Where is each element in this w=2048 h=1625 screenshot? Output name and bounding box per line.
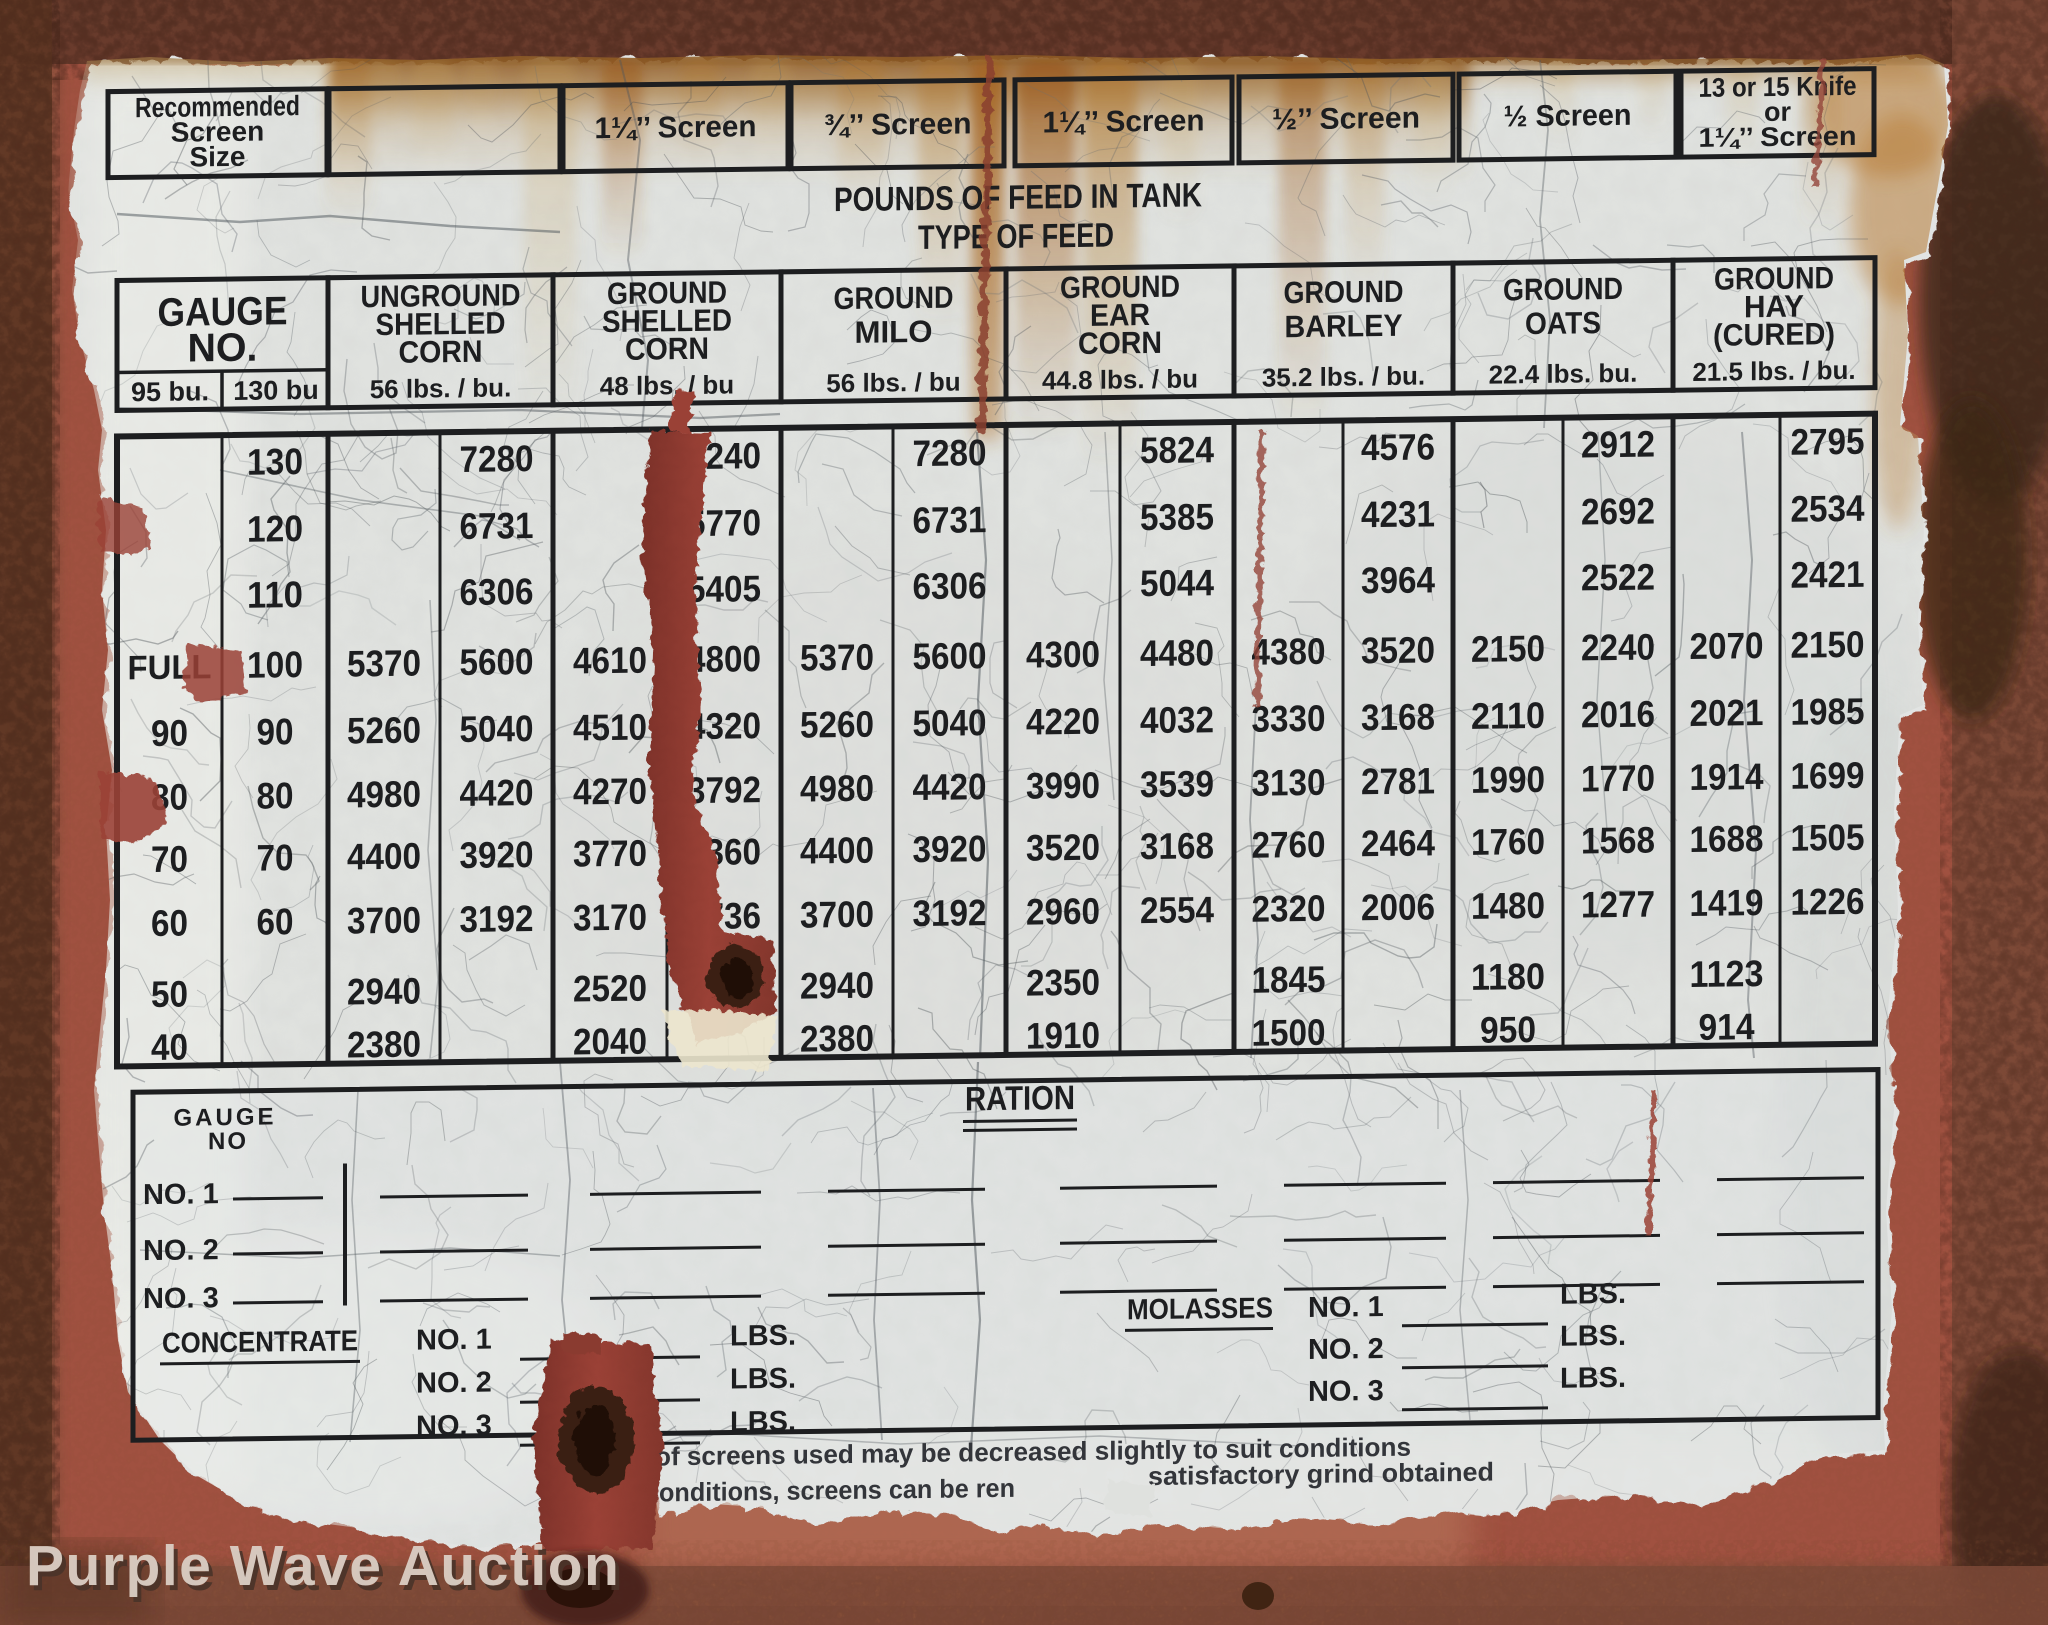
svg-text:3192: 3192 [912, 892, 986, 934]
svg-text:70: 70 [151, 839, 188, 880]
svg-text:(CURED): (CURED) [1713, 316, 1835, 353]
svg-text:4400: 4400 [800, 830, 874, 872]
svg-text:CORN: CORN [398, 334, 482, 370]
svg-text:1480: 1480 [1471, 885, 1545, 927]
svg-text:1226: 1226 [1791, 881, 1865, 923]
svg-text:¾’’ Screen: ¾’’ Screen [824, 107, 972, 142]
svg-text:22.4 lbs. bu.: 22.4 lbs. bu. [1489, 358, 1638, 390]
svg-text:OATS: OATS [1525, 305, 1601, 341]
svg-text:4032: 4032 [1140, 699, 1214, 741]
svg-text:2795: 2795 [1791, 421, 1865, 463]
svg-text:1688: 1688 [1690, 818, 1764, 860]
svg-text:2912: 2912 [1581, 423, 1655, 465]
svg-text:½ Screen: ½ Screen [1504, 99, 1632, 134]
svg-text:2534: 2534 [1791, 488, 1865, 530]
svg-text:7280: 7280 [460, 438, 534, 480]
svg-text:2940: 2940 [347, 971, 421, 1013]
svg-text:56 lbs. / bu: 56 lbs. / bu [826, 367, 960, 399]
svg-text:2380: 2380 [347, 1024, 421, 1066]
svg-text:2522: 2522 [1581, 556, 1655, 598]
svg-text:LBS.: LBS. [730, 1320, 796, 1353]
svg-text:6731: 6731 [460, 505, 534, 547]
svg-text:3990: 3990 [1026, 765, 1100, 807]
svg-text:1910: 1910 [1026, 1015, 1100, 1057]
svg-text:4420: 4420 [912, 766, 986, 808]
svg-text:4480: 4480 [1140, 632, 1214, 674]
svg-text:NO. 3: NO. 3 [143, 1282, 219, 1315]
svg-text:60: 60 [256, 901, 293, 942]
svg-text:80: 80 [256, 775, 293, 816]
svg-text:2150: 2150 [1471, 628, 1545, 670]
svg-text:LBS.: LBS. [1560, 1362, 1626, 1395]
svg-text:130 bu: 130 bu [233, 375, 319, 406]
svg-text:3770: 3770 [573, 833, 647, 875]
svg-text:GROUND: GROUND [1503, 271, 1623, 308]
svg-text:Size: Size [189, 141, 245, 173]
svg-text:MOLASSES: MOLASSES [1127, 1292, 1273, 1326]
svg-text:2040: 2040 [573, 1021, 647, 1063]
svg-text:5385: 5385 [1140, 496, 1214, 538]
svg-text:3520: 3520 [1361, 629, 1435, 671]
svg-text:21.5 lbs. / bu.: 21.5 lbs. / bu. [1692, 355, 1855, 387]
svg-text:44.8 lbs. / bu: 44.8 lbs. / bu [1042, 363, 1198, 395]
svg-text:3192: 3192 [460, 898, 534, 940]
svg-text:5370: 5370 [347, 643, 421, 685]
svg-text:TYPE OF FEED: TYPE OF FEED [918, 217, 1114, 258]
svg-text:3700: 3700 [347, 900, 421, 942]
svg-text:2110: 2110 [1471, 695, 1545, 737]
svg-text:4980: 4980 [347, 774, 421, 816]
svg-text:NO. 1: NO. 1 [143, 1178, 219, 1211]
svg-text:4220: 4220 [1026, 701, 1100, 743]
svg-text:5600: 5600 [460, 641, 534, 683]
svg-text:95 bu.: 95 bu. [131, 376, 209, 407]
svg-text:1505: 1505 [1791, 817, 1865, 859]
svg-text:NO. 3: NO. 3 [1308, 1375, 1384, 1408]
svg-text:½’’ Screen: ½’’ Screen [1272, 102, 1420, 137]
svg-text:3168: 3168 [1140, 825, 1214, 867]
svg-text:1985: 1985 [1791, 691, 1865, 733]
svg-text:MILO: MILO [855, 314, 933, 350]
svg-text:3792: 3792 [687, 769, 761, 811]
svg-text:90: 90 [256, 711, 293, 752]
svg-text:5040: 5040 [912, 702, 986, 744]
svg-text:4610: 4610 [573, 640, 647, 682]
svg-text:90: 90 [151, 713, 188, 754]
svg-text:2150: 2150 [1791, 624, 1865, 666]
svg-text:5040: 5040 [460, 708, 534, 750]
svg-text:1699: 1699 [1791, 755, 1865, 797]
svg-text:1123: 1123 [1690, 953, 1764, 995]
svg-text:3920: 3920 [912, 828, 986, 870]
svg-text:1¼’’ Screen: 1¼’’ Screen [595, 110, 757, 145]
svg-text:1990: 1990 [1471, 759, 1545, 801]
svg-text:100: 100 [247, 644, 303, 686]
svg-text:4576: 4576 [1361, 426, 1435, 468]
svg-text:1914: 1914 [1690, 756, 1764, 798]
svg-text:CONCENTRATE: CONCENTRATE [162, 1325, 358, 1360]
svg-text:2006: 2006 [1361, 886, 1435, 928]
svg-text:6731: 6731 [912, 499, 986, 541]
svg-text:4380: 4380 [1251, 631, 1325, 673]
svg-text:3170: 3170 [573, 897, 647, 939]
svg-text:56 lbs. / bu.: 56 lbs. / bu. [370, 372, 512, 404]
svg-text:4510: 4510 [573, 707, 647, 749]
svg-text:3130: 3130 [1251, 762, 1325, 804]
svg-text:4231: 4231 [1361, 493, 1435, 535]
svg-text:BARLEY: BARLEY [1285, 308, 1403, 345]
svg-text:5405: 5405 [687, 568, 761, 610]
svg-text:3539: 3539 [1140, 763, 1214, 805]
svg-text:3520: 3520 [1026, 827, 1100, 869]
svg-text:NO. 2: NO. 2 [1308, 1333, 1384, 1366]
svg-text:2781: 2781 [1361, 760, 1435, 802]
svg-text:NO. 1: NO. 1 [1308, 1291, 1384, 1324]
svg-text:3168: 3168 [1361, 696, 1435, 738]
svg-text:2464: 2464 [1361, 822, 1435, 864]
svg-text:4300: 4300 [1026, 634, 1100, 676]
svg-text:2350: 2350 [1026, 962, 1100, 1004]
svg-text:35.2 lbs. / bu.: 35.2 lbs. / bu. [1262, 360, 1425, 392]
svg-text:4270: 4270 [573, 771, 647, 813]
svg-text:5260: 5260 [347, 710, 421, 752]
svg-text:GROUND: GROUND [834, 280, 954, 317]
svg-text:2421: 2421 [1791, 554, 1865, 596]
svg-text:LBS.: LBS. [1560, 1320, 1626, 1353]
svg-text:60: 60 [151, 903, 188, 944]
svg-text:2940: 2940 [800, 965, 874, 1007]
svg-text:2016: 2016 [1581, 693, 1655, 735]
svg-text:1770: 1770 [1581, 757, 1655, 799]
svg-text:Purple Wave Auction: Purple Wave Auction [26, 1534, 620, 1598]
svg-text:2240: 2240 [1581, 626, 1655, 668]
svg-text:LBS.: LBS. [730, 1406, 796, 1439]
svg-text:7280: 7280 [912, 432, 986, 474]
svg-text:CORN: CORN [625, 331, 709, 367]
svg-text:1568: 1568 [1581, 819, 1655, 861]
svg-text:5600: 5600 [912, 635, 986, 677]
svg-text:NO. 1: NO. 1 [416, 1324, 492, 1357]
svg-text:4320: 4320 [687, 705, 761, 747]
svg-text:LBS.: LBS. [730, 1363, 796, 1396]
svg-text:2021: 2021 [1690, 692, 1764, 734]
svg-text:1180: 1180 [1471, 956, 1545, 998]
svg-text:CORN: CORN [1078, 325, 1162, 361]
svg-text:3964: 3964 [1361, 559, 1435, 601]
svg-text:50: 50 [151, 974, 188, 1015]
svg-text:3330: 3330 [1251, 698, 1325, 740]
svg-text:2554: 2554 [1140, 889, 1214, 931]
svg-text:1419: 1419 [1690, 882, 1764, 924]
svg-text:4420: 4420 [460, 772, 534, 814]
svg-text:6306: 6306 [460, 571, 534, 613]
svg-text:RATION: RATION [965, 1079, 1075, 1118]
svg-text:2380: 2380 [800, 1018, 874, 1060]
svg-text:2760: 2760 [1251, 824, 1325, 866]
svg-text:NO. 2: NO. 2 [416, 1367, 492, 1400]
svg-text:LBS.: LBS. [1560, 1278, 1626, 1311]
svg-text:2692: 2692 [1581, 490, 1655, 532]
svg-text:40: 40 [151, 1027, 188, 1068]
svg-text:1¼’’ Screen: 1¼’’ Screen [1698, 121, 1856, 153]
svg-text:4800: 4800 [687, 638, 761, 680]
svg-text:6306: 6306 [912, 565, 986, 607]
svg-text:1277: 1277 [1581, 883, 1655, 925]
svg-text:48 lbs. / bu: 48 lbs. / bu [600, 369, 734, 401]
svg-text:120: 120 [247, 508, 303, 550]
svg-text:GROUND: GROUND [1283, 274, 1403, 311]
svg-text:5044: 5044 [1140, 562, 1214, 604]
svg-text:1845: 1845 [1251, 959, 1325, 1001]
svg-text:NO.: NO. [187, 326, 257, 371]
svg-text:5260: 5260 [800, 704, 874, 746]
svg-text:NO. 2: NO. 2 [143, 1234, 219, 1267]
svg-text:4980: 4980 [800, 768, 874, 810]
svg-text:NO. 3: NO. 3 [416, 1410, 492, 1443]
svg-text:914: 914 [1699, 1006, 1755, 1048]
svg-text:NO: NO [208, 1128, 248, 1156]
svg-text:4400: 4400 [347, 836, 421, 878]
svg-text:110: 110 [247, 574, 303, 616]
svg-text:2320: 2320 [1251, 888, 1325, 930]
svg-text:2070: 2070 [1690, 625, 1764, 667]
svg-text:3920: 3920 [460, 834, 534, 876]
svg-text:1¼’’ Screen: 1¼’’ Screen [1043, 104, 1205, 139]
svg-text:conditions, screens can be ren: conditions, screens can be ren [645, 1473, 1015, 1508]
svg-text:130: 130 [247, 441, 303, 483]
svg-text:5824: 5824 [1140, 429, 1214, 471]
svg-text:950: 950 [1480, 1009, 1536, 1051]
svg-text:1500: 1500 [1251, 1012, 1325, 1054]
svg-text:satisfactory grind obtained: satisfactory grind obtained [1148, 1457, 1494, 1491]
svg-text:70: 70 [256, 837, 293, 878]
svg-text:2960: 2960 [1026, 891, 1100, 933]
svg-text:5370: 5370 [800, 637, 874, 679]
svg-text:3700: 3700 [800, 894, 874, 936]
svg-text:2520: 2520 [573, 968, 647, 1010]
svg-text:1760: 1760 [1471, 821, 1545, 863]
svg-text:POUNDS OF FEED IN TANK: POUNDS OF FEED IN TANK [834, 176, 1202, 219]
